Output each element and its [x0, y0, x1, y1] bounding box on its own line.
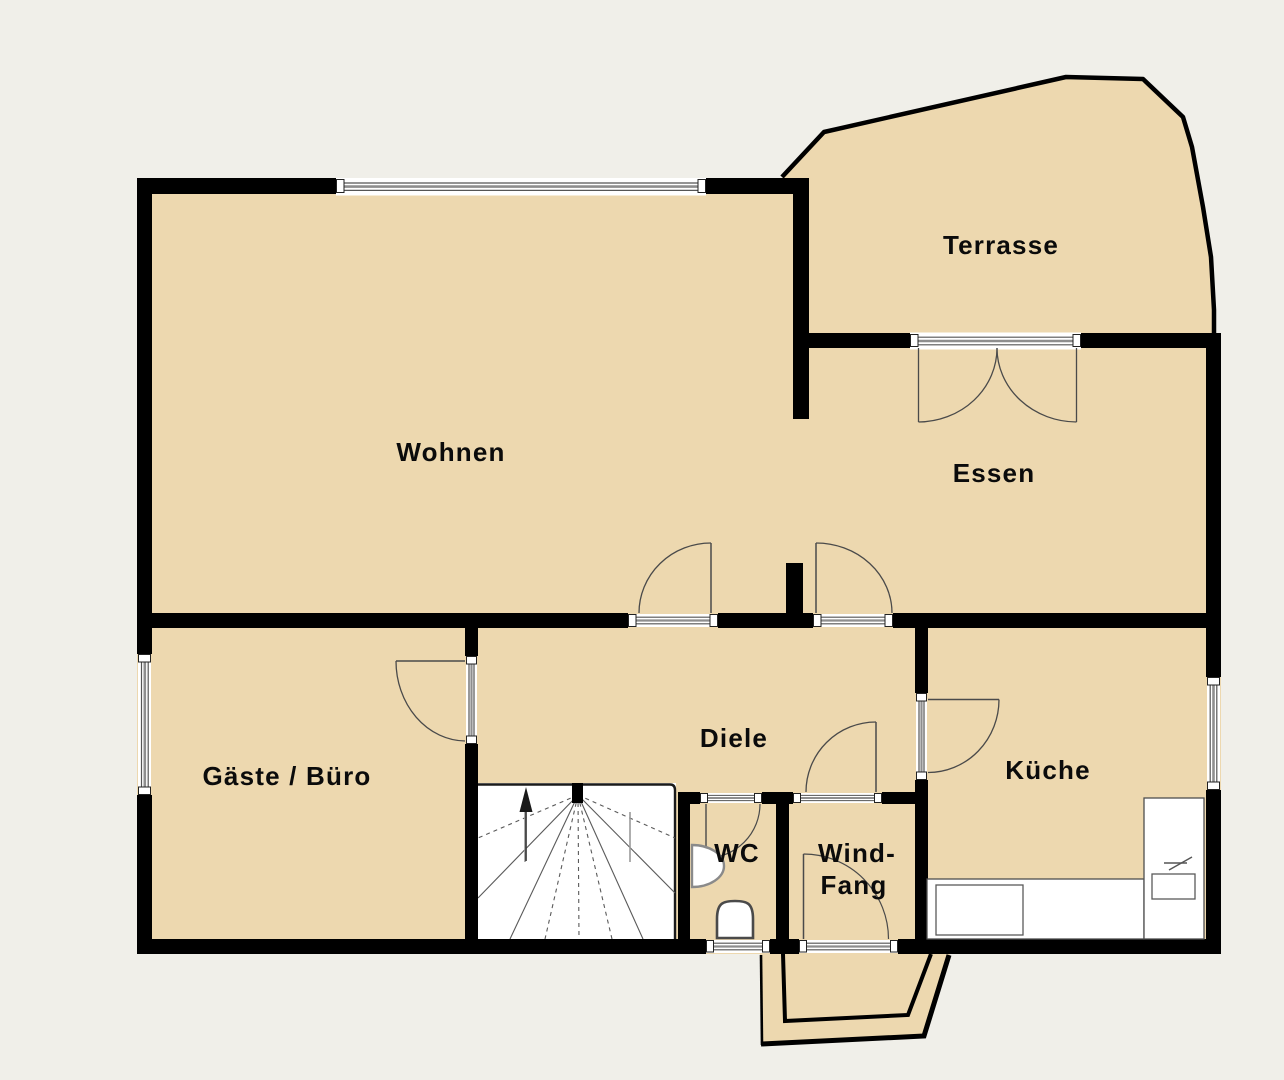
svg-text:Terrasse: Terrasse: [943, 230, 1059, 260]
svg-text:Wind-: Wind-: [818, 838, 896, 868]
svg-text:Essen: Essen: [953, 458, 1036, 488]
svg-text:Diele: Diele: [700, 723, 768, 753]
svg-text:WC: WC: [714, 838, 760, 868]
svg-text:Fang: Fang: [821, 870, 888, 900]
svg-text:Küche: Küche: [1005, 755, 1090, 785]
svg-text:Gäste / Büro: Gäste / Büro: [203, 761, 372, 791]
svg-text:Wohnen: Wohnen: [396, 437, 505, 467]
